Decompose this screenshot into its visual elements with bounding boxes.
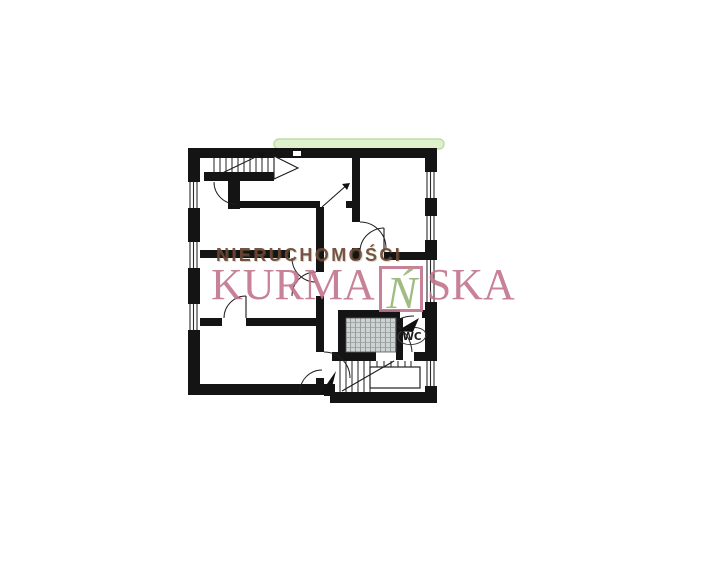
watermark-boxed-letter-frame: Ń xyxy=(379,266,423,312)
watermark-brand: KURMA Ń SKA xyxy=(211,263,515,311)
watermark-brand-prefix: KURMA xyxy=(211,263,375,307)
stair-door-leaf xyxy=(274,156,298,179)
highlight-mark xyxy=(274,139,444,149)
watermark-boxed-letter: Ń xyxy=(386,271,417,315)
watermark-brand-suffix: SKA xyxy=(427,263,515,307)
bathroom-hatch xyxy=(346,318,396,352)
wc-label: WC xyxy=(402,331,422,343)
lower-staircase xyxy=(340,361,420,392)
floorplan-page: WC NIERUCHOMOŚCI KURMA Ń SKA xyxy=(0,0,720,566)
window-icon xyxy=(190,242,197,268)
window-icon xyxy=(427,172,434,198)
window-icon xyxy=(190,304,197,330)
window-icon xyxy=(427,216,434,240)
door-leaf xyxy=(322,184,348,207)
window-icon xyxy=(190,182,197,208)
